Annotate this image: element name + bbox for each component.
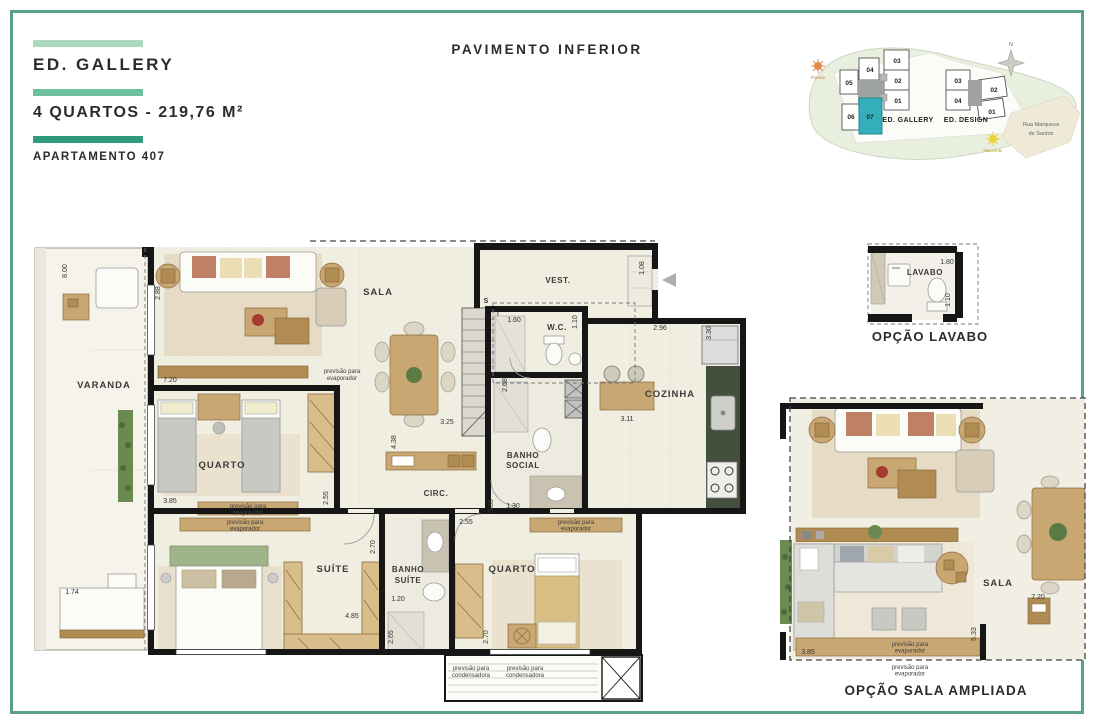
dim-label: 8.00 <box>62 264 69 278</box>
svg-text:evaporador: evaporador <box>233 511 263 517</box>
svg-text:SUÍTE: SUÍTE <box>395 576 422 585</box>
svg-text:evaporador: evaporador <box>561 527 591 533</box>
quarto-inferior-furniture <box>455 554 622 650</box>
site-map: 05 04 03 02 01 06 07 03 04 02 01 ED. GAL… <box>796 18 1088 170</box>
svg-text:previsão para: previsão para <box>892 665 929 671</box>
svg-text:evaporador: evaporador <box>895 649 925 655</box>
dim-label: 3.85 <box>163 498 177 505</box>
site-unit-label: 02 <box>894 78 902 85</box>
dim-label: 4.38 <box>391 435 398 449</box>
stair-label: S <box>484 298 489 305</box>
dim-label: 1.80 <box>940 259 954 266</box>
option-lavabo-caption: OPÇÃO LAVABO <box>855 329 1005 344</box>
room-label-circ: CIRC. <box>424 489 449 498</box>
site-unit-label: 04 <box>954 98 962 105</box>
svg-text:previsão para: previsão para <box>892 642 929 648</box>
dim-label: 3.11 <box>620 416 633 423</box>
dim-label: 2.65 <box>388 630 395 644</box>
site-unit-label: 01 <box>988 109 996 116</box>
site-unit-label: 02 <box>990 87 998 94</box>
dim-label: 1.74 <box>65 589 79 596</box>
room-label-lavabo: LAVABO <box>907 268 943 277</box>
street-name-line1: Rua Marquesa <box>1023 122 1060 128</box>
site-unit-07-label: 07 <box>866 114 874 121</box>
dim-label: 2.70 <box>483 630 490 644</box>
room-label-quarto-superior: QUARTO <box>199 460 246 471</box>
svg-text:evaporador: evaporador <box>895 672 925 678</box>
dim-label: 2.70 <box>370 540 377 554</box>
room-label-banho-social: BANHO <box>507 451 539 460</box>
dim-label: 1.60 <box>507 317 521 324</box>
brand-bar-medium <box>33 89 143 96</box>
room-label-vest: VEST. <box>545 276 570 285</box>
banho-social-fixtures <box>491 378 587 514</box>
street-name-line2: de Santos <box>1029 131 1054 137</box>
option-sala-plan: SALA 7.20 5.33 3.85 previsão para evapor… <box>780 392 1092 680</box>
dim-label: 4.85 <box>345 613 359 620</box>
main-floor-plan: S <box>30 230 770 720</box>
dim-label: 2.88 <box>155 286 162 300</box>
dim-label: 2.55 <box>459 519 473 526</box>
dim-label: 2.68 <box>502 378 509 392</box>
apartment-number: APARTAMENTO 407 <box>33 151 293 163</box>
entry-arrow-icon <box>662 273 676 287</box>
svg-text:previsão para: previsão para <box>453 666 490 672</box>
dim-label: 1.20 <box>391 596 405 603</box>
brand-block: ED. GALLERY 4 QUARTOS - 219,76 M² APARTA… <box>33 40 293 163</box>
dim-label: 2.55 <box>323 491 330 505</box>
dim-label: 1.08 <box>639 261 646 275</box>
dim-label: 2.96 <box>653 325 667 332</box>
north-label: N <box>1009 42 1013 48</box>
room-label-quarto-inferior: QUARTO <box>489 564 536 575</box>
room-label-banho-suite: BANHO <box>392 565 424 574</box>
dim-label: 1.10 <box>572 315 579 329</box>
site-building-gallery-label: ED. GALLERY <box>882 117 933 124</box>
room-label-sala: SALA <box>363 287 393 298</box>
dim-label: 3.30 <box>706 326 713 340</box>
site-building-design-label: ED. DESIGN <box>944 117 988 124</box>
dim-label: 3.85 <box>801 649 815 656</box>
site-unit-label: 01 <box>894 98 902 105</box>
dim-label: 1.30 <box>506 503 520 510</box>
brand-bar-dark <box>33 136 143 143</box>
room-label-wc: W.C. <box>547 323 567 332</box>
option-sala-caption: OPÇÃO SALA AMPLIADA <box>780 683 1092 698</box>
floor-plan-sheet: ED. GALLERY 4 QUARTOS - 219,76 M² APARTA… <box>0 0 1094 724</box>
site-unit-label: 03 <box>893 58 901 65</box>
site-unit-label: 04 <box>866 67 874 74</box>
dim-label: 1.10 <box>945 293 952 307</box>
room-label-option-sala: SALA <box>983 578 1013 589</box>
svg-text:condensadora: condensadora <box>506 673 545 679</box>
site-unit-label: 05 <box>845 80 853 87</box>
svg-text:condensadora: condensadora <box>452 673 491 679</box>
svg-text:evaporador: evaporador <box>327 376 357 382</box>
dim-label: 7.20 <box>163 377 177 384</box>
building-name: ED. GALLERY <box>33 55 293 75</box>
svg-text:previsão para: previsão para <box>324 369 361 375</box>
svg-text:previsão para: previsão para <box>230 504 267 510</box>
lavabo-toilet <box>928 278 946 302</box>
dim-label: 7.20 <box>1031 594 1045 601</box>
sun-west-label: Poente <box>811 75 826 80</box>
dim-label: 3.25 <box>440 419 454 426</box>
room-label-suite: SUÍTE <box>317 564 350 575</box>
svg-text:previsão para: previsão para <box>227 520 264 526</box>
svg-text:previsão para: previsão para <box>507 666 544 672</box>
room-label-cozinha: COZINHA <box>645 389 695 400</box>
dim-label: 5.33 <box>971 627 978 641</box>
svg-text:evaporador: evaporador <box>230 527 260 533</box>
plan-type: 4 QUARTOS - 219,76 M² <box>33 104 293 122</box>
svg-text:SOCIAL: SOCIAL <box>506 461 540 470</box>
room-label-varanda: VARANDA <box>77 380 131 391</box>
svg-text:previsão para: previsão para <box>558 520 595 526</box>
site-unit-label: 06 <box>847 114 855 121</box>
site-unit-label: 03 <box>954 78 962 85</box>
sun-east-label: Nascente <box>983 148 1003 153</box>
dim-label: 0.85 <box>488 499 495 513</box>
